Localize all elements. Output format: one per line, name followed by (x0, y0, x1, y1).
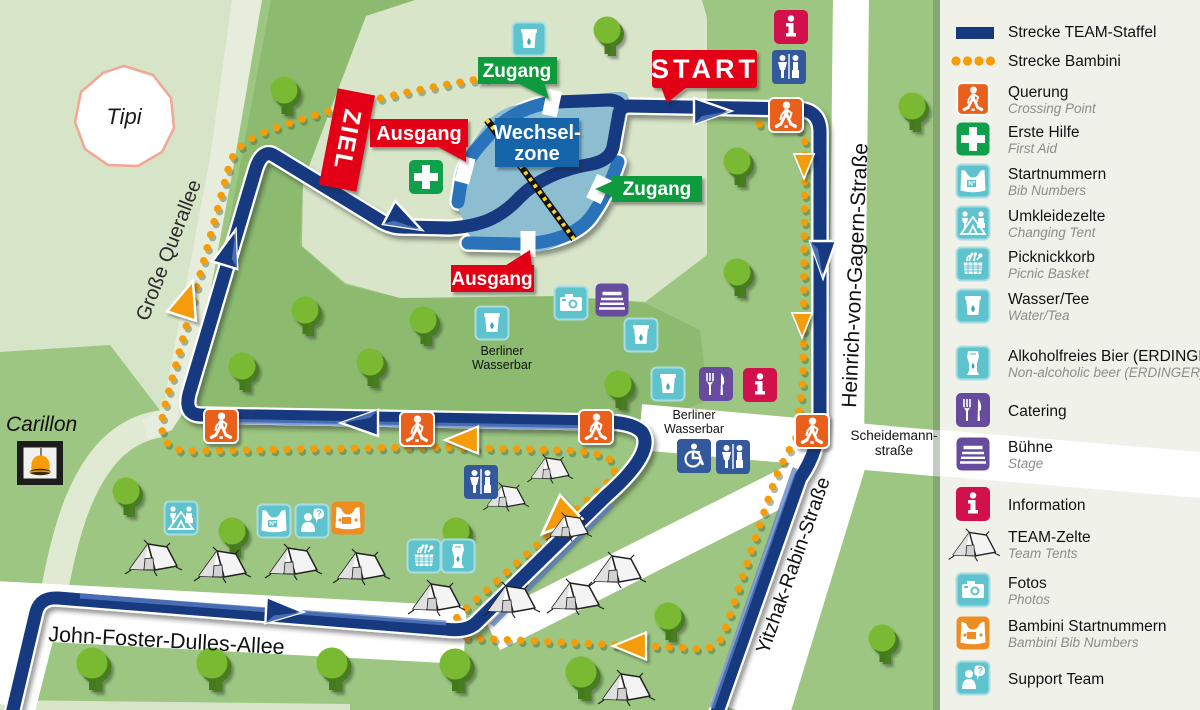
svg-text:Startnummern: Startnummern (1008, 166, 1106, 183)
svg-text:Stage: Stage (1008, 456, 1043, 471)
svg-text:Strecke TEAM-Staffel: Strecke TEAM-Staffel (1008, 24, 1156, 41)
svg-text:Berliner: Berliner (480, 344, 523, 358)
svg-text:straße: straße (875, 443, 913, 458)
svg-text:Water/Tea: Water/Tea (1008, 308, 1070, 323)
svg-text:Alkoholfreies Bier (ERDINGER): Alkoholfreies Bier (ERDINGER) (1008, 348, 1200, 365)
svg-text:Information: Information (1008, 497, 1086, 514)
svg-text:Picknickkorb: Picknickkorb (1008, 249, 1095, 266)
svg-text:Zugang: Zugang (623, 179, 692, 200)
svg-text:Ausgang: Ausgang (451, 269, 532, 290)
svg-text:Berliner: Berliner (672, 408, 715, 422)
svg-text:Bambini Startnummern: Bambini Startnummern (1008, 618, 1167, 635)
svg-text:Wasser/Tee: Wasser/Tee (1008, 291, 1089, 308)
svg-text:Bühne: Bühne (1008, 439, 1053, 456)
svg-text:First Aid: First Aid (1008, 141, 1057, 156)
svg-text:Wasserbar: Wasserbar (472, 358, 532, 372)
svg-text:Picnic Basket: Picnic Basket (1008, 266, 1090, 281)
svg-text:START: START (651, 54, 759, 84)
svg-text:Strecke Bambini: Strecke Bambini (1008, 53, 1121, 70)
svg-text:Bambini Bib Numbers: Bambini Bib Numbers (1008, 635, 1139, 650)
svg-text:Umkleidezelte: Umkleidezelte (1008, 208, 1105, 225)
svg-text:Catering: Catering (1008, 403, 1067, 420)
svg-text:Querung: Querung (1008, 84, 1068, 101)
svg-text:Wechsel-: Wechsel- (493, 122, 580, 144)
svg-text:TEAM-Zelte: TEAM-Zelte (1008, 529, 1091, 546)
svg-text:Team Tents: Team Tents (1008, 546, 1078, 561)
svg-text:Wasserbar: Wasserbar (664, 422, 724, 436)
svg-text:Photos: Photos (1008, 592, 1050, 607)
svg-text:Fotos: Fotos (1008, 575, 1047, 592)
svg-text:zone: zone (514, 143, 560, 165)
svg-text:Tipi: Tipi (106, 104, 142, 129)
svg-text:Erste Hilfe: Erste Hilfe (1008, 124, 1080, 141)
svg-text:Support Team: Support Team (1008, 671, 1104, 688)
svg-text:Zugang: Zugang (483, 61, 552, 82)
svg-text:Bib Numbers: Bib Numbers (1008, 183, 1086, 198)
svg-text:Non-alcoholic beer (ERDINGER): Non-alcoholic beer (ERDINGER) (1008, 365, 1200, 380)
svg-text:Crossing Point: Crossing Point (1008, 101, 1097, 116)
svg-text:Carillon: Carillon (6, 413, 77, 436)
svg-text:Scheidemann-: Scheidemann- (850, 428, 937, 443)
svg-text:Ausgang: Ausgang (376, 123, 462, 145)
svg-text:Changing Tent: Changing Tent (1008, 225, 1097, 240)
